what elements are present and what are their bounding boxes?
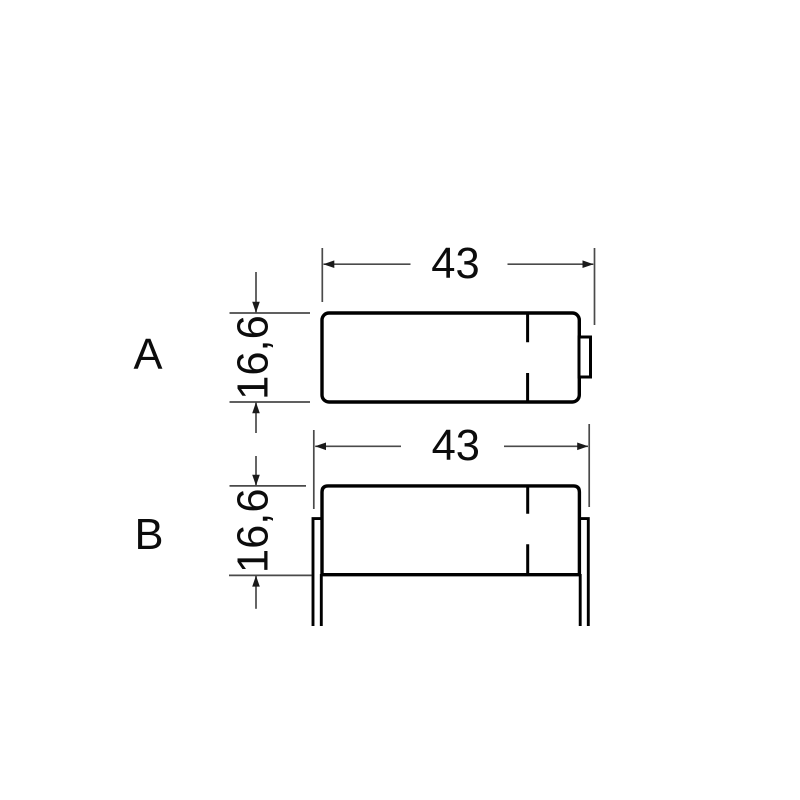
svg-text:B: B [134, 511, 163, 559]
svg-text:43: 43 [432, 422, 480, 470]
svg-text:43: 43 [431, 240, 479, 288]
svg-text:16,6: 16,6 [230, 315, 278, 400]
svg-text:16,6: 16,6 [230, 488, 278, 573]
svg-text:A: A [133, 331, 162, 379]
